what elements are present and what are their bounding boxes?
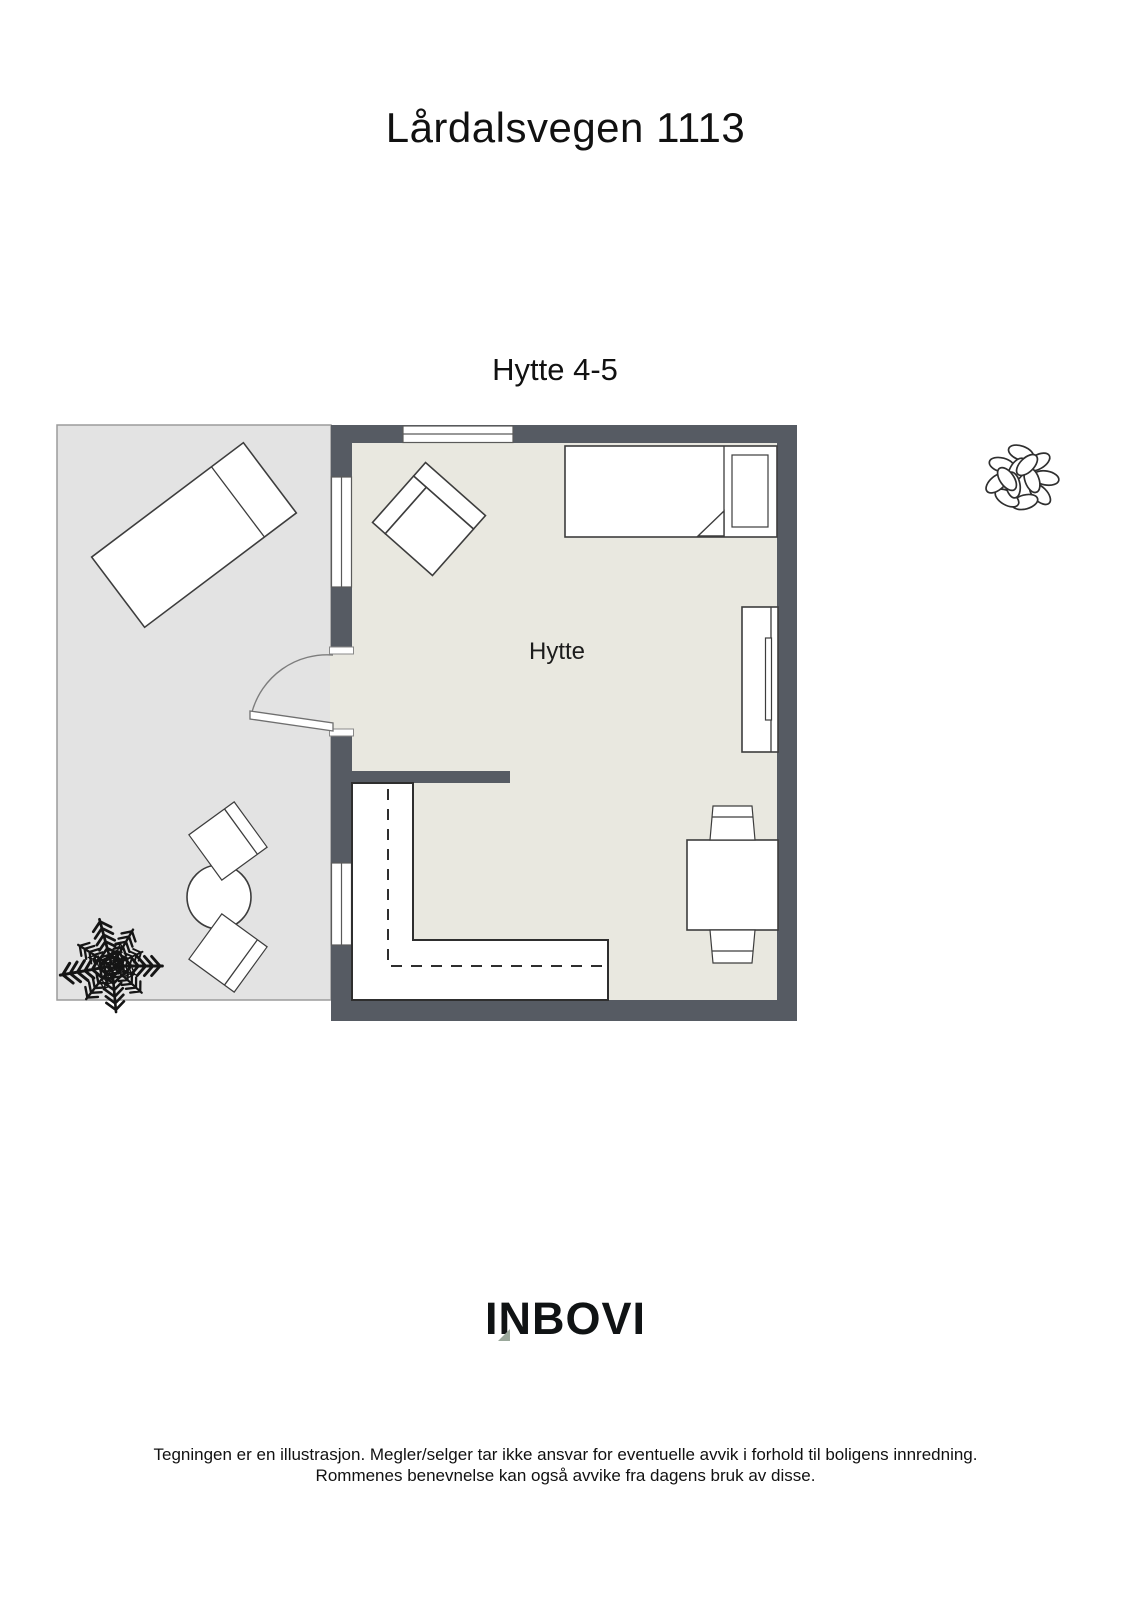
single-bed-icon bbox=[565, 446, 777, 537]
logo: INBOVI bbox=[0, 1293, 1131, 1345]
shrub-icon bbox=[983, 442, 1060, 512]
disclaimer-line-1: Tegningen er en illustrasjon. Megler/sel… bbox=[0, 1444, 1131, 1465]
interior-wall-stub bbox=[352, 771, 510, 783]
disclaimer-line-2: Rommenes benevnelse kan også avvike fra … bbox=[0, 1465, 1131, 1486]
wardrobe-icon bbox=[742, 607, 778, 752]
dining-table-icon bbox=[687, 840, 778, 930]
floorplan: Hytte bbox=[0, 400, 1131, 1040]
disclaimer: Tegningen er en illustrasjon. Megler/sel… bbox=[0, 1444, 1131, 1486]
room-label: Hytte bbox=[529, 638, 585, 665]
window-top-icon bbox=[403, 426, 513, 443]
dining-chair-icon bbox=[710, 806, 755, 840]
window-left-upper-icon bbox=[332, 477, 352, 587]
dining-chair-icon bbox=[710, 930, 755, 963]
window-left-lower-icon bbox=[332, 863, 352, 945]
page-title: Lårdalsvegen 1113 bbox=[0, 104, 1131, 152]
plan-subtitle: Hytte 4-5 bbox=[0, 352, 1110, 388]
